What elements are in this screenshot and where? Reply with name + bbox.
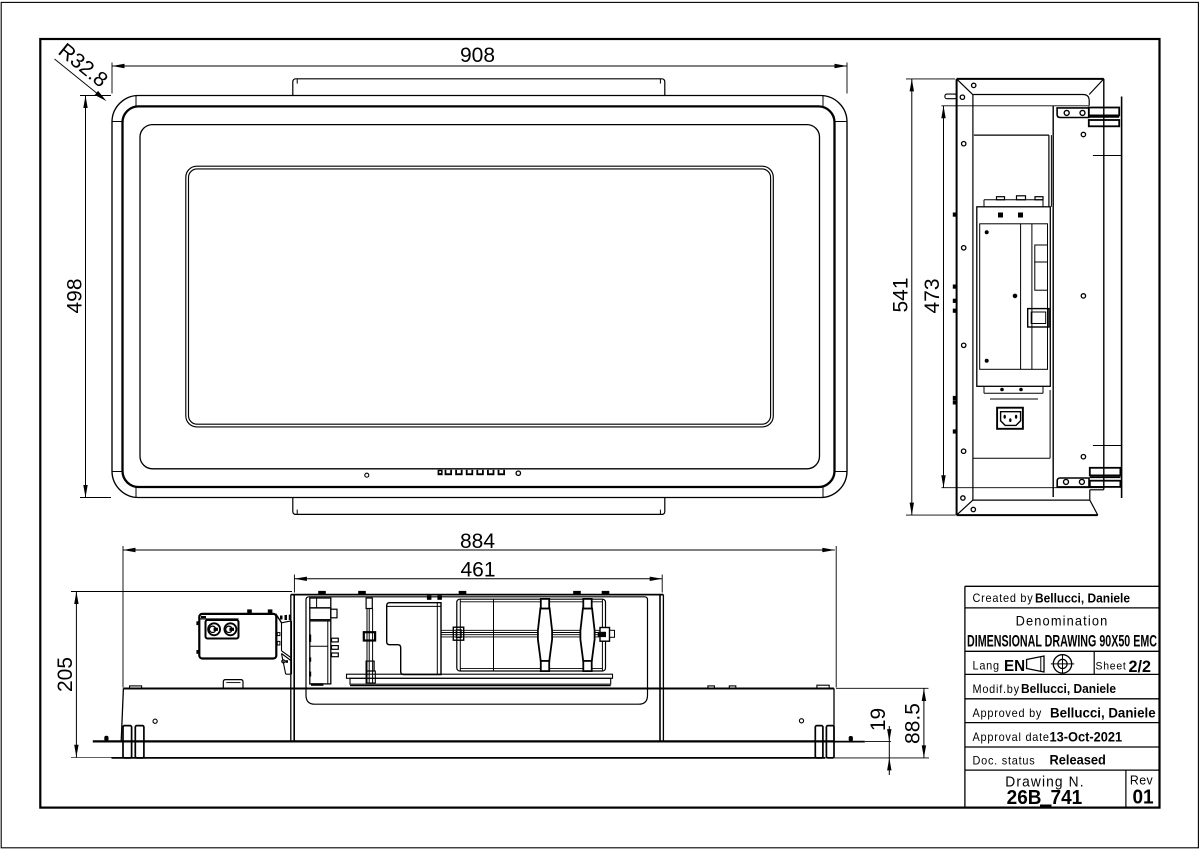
svg-text:Bellucci, Daniele: Bellucci, Daniele — [1021, 682, 1116, 697]
svg-text:541: 541 — [889, 277, 912, 312]
svg-text:741: 741 — [1051, 787, 1083, 810]
svg-text:88.5: 88.5 — [902, 703, 925, 744]
svg-text:908: 908 — [460, 44, 495, 67]
svg-text:205: 205 — [54, 657, 77, 692]
svg-text:EN: EN — [1004, 658, 1025, 675]
svg-text:19: 19 — [867, 708, 890, 731]
svg-text:13-Oct-2021: 13-Oct-2021 — [1050, 729, 1123, 744]
svg-text:Modif.by: Modif.by — [973, 684, 1020, 696]
svg-text:Bellucci, Daniele: Bellucci, Daniele — [1035, 591, 1130, 606]
svg-text:473: 473 — [921, 278, 944, 313]
svg-text:Released: Released — [1050, 752, 1106, 767]
svg-text:2/2: 2/2 — [1129, 657, 1151, 676]
svg-text:26B: 26B — [1007, 787, 1042, 810]
svg-text:Approval date: Approval date — [973, 732, 1050, 744]
svg-text:DIMENSIONAL DRAWING 90X50 EMC: DIMENSIONAL DRAWING 90X50 EMC — [967, 633, 1157, 651]
svg-text:Doc. status: Doc. status — [973, 755, 1036, 767]
svg-text:498: 498 — [64, 278, 87, 313]
svg-text:Approved by: Approved by — [973, 708, 1043, 720]
svg-text:884: 884 — [460, 530, 495, 553]
svg-text:Bellucci, Daniele: Bellucci, Daniele — [1050, 705, 1156, 720]
svg-text:Lang: Lang — [973, 660, 1000, 672]
svg-text:01: 01 — [1132, 786, 1153, 809]
svg-text:Denomination: Denomination — [1016, 613, 1109, 628]
svg-text:Created by: Created by — [973, 593, 1034, 605]
svg-text:Sheet: Sheet — [1096, 660, 1127, 672]
svg-text:461: 461 — [460, 559, 495, 582]
